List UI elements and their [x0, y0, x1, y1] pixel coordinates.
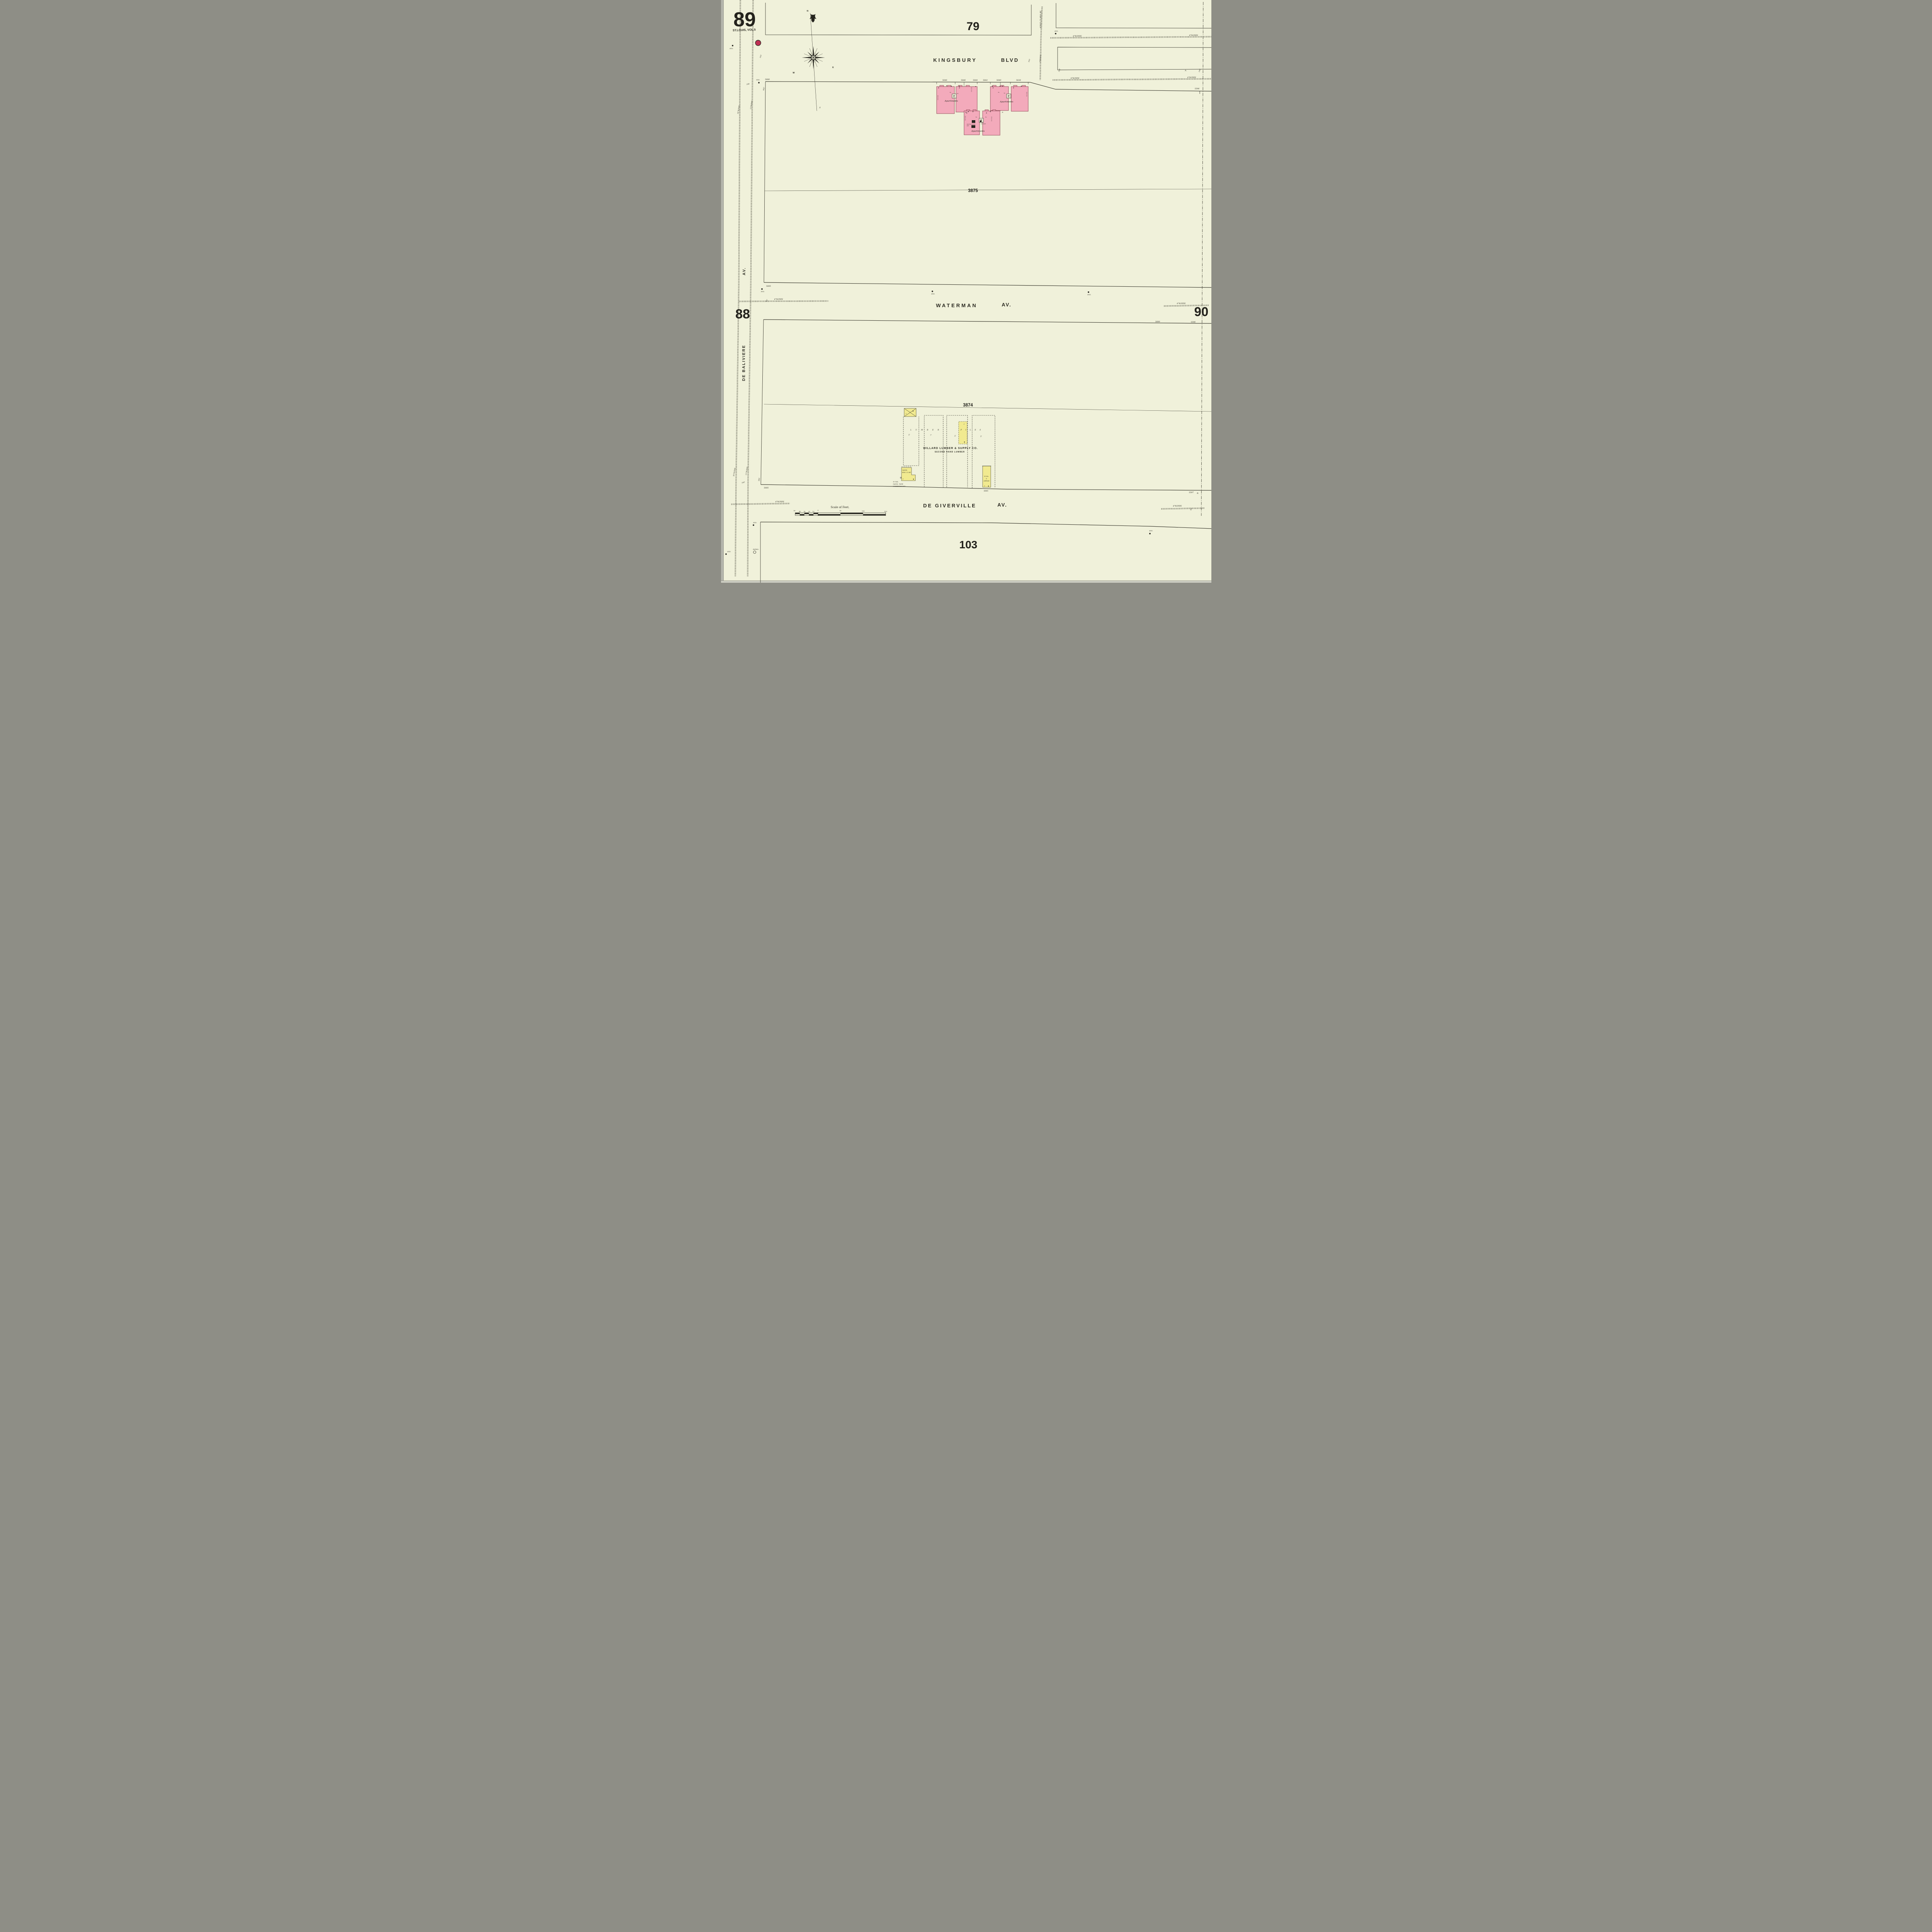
- scale-label: 100: [862, 510, 865, 512]
- hyd-label: HYD.: [753, 522, 757, 524]
- adjacent-sheet-right: 90: [1194, 304, 1208, 319]
- scale-label: 150: [884, 510, 887, 512]
- hyd-label: HYD.: [760, 291, 764, 293]
- hyd-label: HYD.: [1149, 530, 1153, 532]
- stories-4: 4: [985, 112, 987, 114]
- wall-note: 12: [991, 121, 992, 122]
- tank-note-1: 50 GAL.: [893, 481, 899, 483]
- street-kingsbury: KINGSBURY: [933, 57, 977, 63]
- chimney-dot: [988, 486, 988, 486]
- address-5685-giverville: 5685: [764, 487, 768, 489]
- piles-word: PILES: [960, 429, 985, 431]
- sanborn-map-sheet: N W E S 89 ST.LOUIS, VOL.5 79 88 90 103 …: [721, 0, 1211, 583]
- scan-edge-left: [721, 0, 723, 583]
- pile-dim: 7': [930, 434, 932, 436]
- address-5638: 5638: [1016, 79, 1020, 82]
- pipe-label-k6-east: 6"W.PIPE: [1189, 34, 1198, 37]
- compass-label-s: S: [819, 107, 821, 109]
- elevator-letter: E: [953, 95, 955, 98]
- office-label-2: &: [986, 478, 987, 480]
- street-de-giverville: DE GIVERVILLE: [923, 503, 976, 509]
- wall-height-stack: 16 12 12 12: [971, 87, 972, 92]
- heating-note-2: BST-: [966, 125, 969, 127]
- b-mark: B.: [965, 112, 967, 113]
- address-5596-waterman: 5596: [1190, 321, 1195, 323]
- wall-note: 12: [971, 91, 972, 92]
- scale-title: Scale of Feet.: [830, 506, 849, 509]
- pipe-label-waterman-west: 6"W.PIPE: [774, 298, 783, 301]
- scale-label: 20: [808, 510, 810, 512]
- ea-note: Ea.: [975, 116, 977, 118]
- compass-label-n: N: [807, 10, 808, 12]
- block-number-3874: 3874: [963, 403, 973, 408]
- adjacent-sheet-top: 79: [966, 20, 979, 33]
- volume-index-dot: [755, 40, 761, 46]
- address-5642: 5642: [983, 79, 987, 82]
- address-5597: 5597: [1189, 492, 1194, 494]
- address-5648: 5648: [942, 79, 947, 82]
- wall-note: 12: [1026, 96, 1027, 97]
- address-5646: 5646: [961, 79, 965, 82]
- chimney-height-note: 10'ABV.RF.: [981, 123, 986, 124]
- apartments-label-center: Apartments: [971, 130, 984, 133]
- apartment-building-5640: [990, 87, 1009, 111]
- wall-note: 12: [964, 120, 966, 121]
- pile-dim: 5': [980, 435, 982, 437]
- stories-4: 4: [958, 87, 960, 89]
- wall-height-stack: 16 12 12 12: [1026, 92, 1027, 97]
- hyd-label: HYD.: [1087, 294, 1091, 296]
- scale-label: 40: [799, 510, 801, 512]
- address-5644: 5644: [973, 79, 977, 82]
- ea-note: Ea.: [997, 92, 1000, 93]
- pipe-label-giverville-east: 6"W.PIPE: [1173, 505, 1182, 507]
- elevator-letter: E: [1007, 95, 1010, 98]
- compass-hub-dot: [813, 57, 814, 58]
- chimney-dot: [913, 411, 913, 412]
- pipe-label-waterman-east: 6"W.PIPE: [1177, 303, 1185, 305]
- wall-height-stack: 16 12 12 12: [991, 117, 992, 122]
- street-de-giverville-type: AV.: [997, 502, 1007, 508]
- ea-note: Ea.: [1003, 92, 1005, 94]
- pile-dim: 5': [908, 434, 910, 436]
- shed-stories: 1: [905, 413, 906, 415]
- address-5600: 5600: [1155, 321, 1160, 323]
- address-5680: 5680: [765, 78, 769, 81]
- wall-note: 12: [937, 99, 939, 100]
- address-5640: 5640: [996, 79, 1001, 82]
- heating-boiler-block: [972, 120, 975, 123]
- street-waterman-type: AV.: [1002, 302, 1012, 308]
- tank-note-3: UNDERGROUND.: [893, 486, 906, 487]
- address-5641: 5641: [983, 490, 988, 492]
- office-label-3: OFFICE: [983, 480, 989, 482]
- hyd-label: HYD.: [931, 293, 935, 295]
- pipe-label-k4-east: 4"W.PIPE: [1187, 77, 1196, 79]
- wall-height-stack: 16 12 12 12: [937, 95, 939, 100]
- heating-boiler-block: [971, 125, 975, 128]
- patrol-label: PATROL: [752, 549, 759, 550]
- scan-edge-bottom: [721, 581, 1211, 583]
- gasol-label-1: GASOL: [902, 469, 908, 471]
- street-waterman: WATERMAN: [936, 303, 978, 308]
- scale-bar: [795, 512, 886, 516]
- address-5685-waterman: 5685: [766, 285, 770, 287]
- adjacent-sheet-left: 88: [735, 307, 750, 321]
- ea-note: Ea.: [985, 116, 987, 118]
- scale-label: 50: [793, 510, 796, 512]
- chimney-dot: [913, 479, 913, 480]
- stories-4: 4: [992, 87, 993, 89]
- adjacent-sheet-bottom: 103: [959, 539, 977, 551]
- pipe-label-k6-west: 6"W.PIPE: [1073, 35, 1082, 37]
- chimney-dot: [964, 442, 964, 442]
- apartments-label-east: Apartments: [999, 101, 1013, 103]
- hyd-label: HYD.: [729, 48, 733, 49]
- ea-note: Ea.: [956, 93, 959, 94]
- gasol-label-2: ENG. 12 HP: [902, 472, 911, 473]
- stories-4: 4: [1012, 87, 1014, 89]
- hyd-label: HYD.: [756, 79, 760, 81]
- pipe-label-giverville-west: 6"W.PIPE: [775, 501, 784, 503]
- apartment-building-5646: [956, 87, 977, 112]
- block-number-3875: 3875: [968, 189, 978, 193]
- letter-a-marker: A.: [1184, 70, 1187, 72]
- apartments-label-west: Apartments: [944, 100, 957, 102]
- scale-label: 0: [817, 509, 818, 511]
- lumber-company-name: WILLARD LUMBER & SUPPLY CO.: [923, 447, 978, 450]
- scale-label: 10: [812, 510, 815, 512]
- street-kingsbury-type: BLVD: [1001, 57, 1019, 63]
- gasol-stories: 1: [902, 478, 903, 480]
- stories-4: 4: [937, 87, 939, 89]
- piles-stories: 1: [963, 423, 964, 425]
- letter-b-5597: B.: [1196, 492, 1199, 495]
- street-clara-pipe-label: 6"W.P. CLARA AV.: [1040, 10, 1042, 28]
- scale-label: 50: [839, 510, 842, 512]
- hyd-label: HYD.: [727, 551, 731, 553]
- piles-shed: [959, 422, 967, 444]
- map-canvas: N W E S 89 ST.LOUIS, VOL.5 79 88 90 103 …: [721, 0, 1211, 583]
- compass-label-e: E: [832, 66, 834, 69]
- street-de-baliviere: DE BALIVIERE: [742, 345, 746, 381]
- hyd-label: HYD.: [1054, 31, 1058, 32]
- ea-note: Ea.: [949, 92, 951, 93]
- apartment-building-5638: [1011, 87, 1028, 111]
- tank-note-2: GASOL. TANK: [893, 483, 903, 485]
- compass-label-w: W: [793, 72, 795, 74]
- office-label-1: W. Ho.: [984, 476, 989, 477]
- pile-dim: 5': [954, 435, 956, 437]
- street-de-baliviere-type: AV.: [742, 267, 747, 275]
- lumber-company-sub: SECOND HAND LUMBER: [935, 451, 965, 453]
- office-stories: 1: [984, 485, 985, 487]
- address-5596-ne: 5596: [1194, 88, 1199, 90]
- scale-label: 30: [803, 510, 806, 512]
- lumber-word: LUMBER: [910, 429, 943, 431]
- b-mark: B.: [1002, 112, 1003, 113]
- wall-height-stack: 16 12 12 12: [964, 116, 966, 121]
- pipe-label-k4-west: 4"W.PIPE: [1070, 77, 1079, 80]
